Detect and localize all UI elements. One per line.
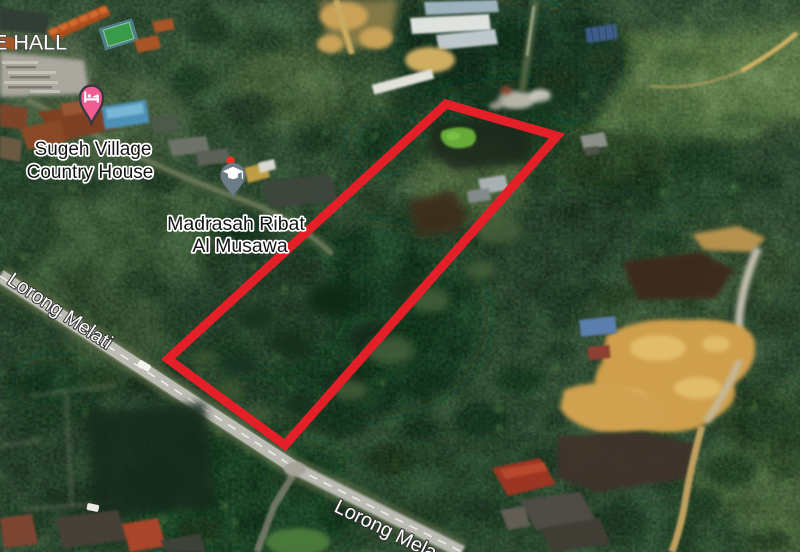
svg-text:Al Musawa: Al Musawa [192,235,288,257]
svg-text:Madrasah Ribat: Madrasah Ribat [167,213,305,235]
svg-text:E HALL: E HALL [0,31,67,55]
svg-text:Sugeh Village: Sugeh Village [35,139,152,160]
svg-text:Country House: Country House [27,162,154,183]
